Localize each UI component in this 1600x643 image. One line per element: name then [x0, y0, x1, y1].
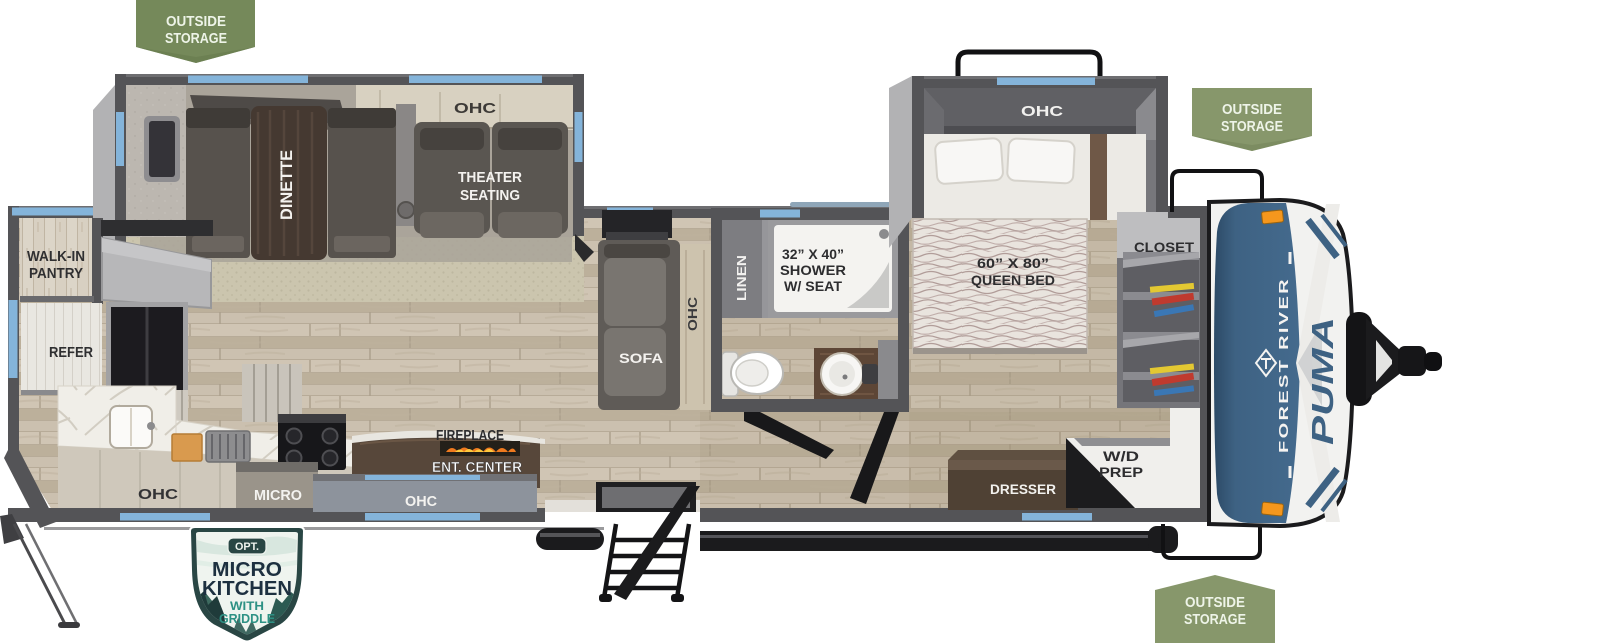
svg-text:MICRO: MICRO: [254, 488, 302, 504]
svg-text:FIREPLACE: FIREPLACE: [436, 428, 504, 444]
svg-text:ENT. CENTER: ENT. CENTER: [432, 460, 522, 476]
svg-text:OUTSIDE: OUTSIDE: [166, 14, 226, 30]
svg-text:PREP: PREP: [1099, 465, 1143, 480]
svg-text:STORAGE: STORAGE: [165, 31, 227, 47]
svg-text:CLOSET: CLOSET: [1134, 239, 1194, 255]
svg-text:OHC: OHC: [686, 297, 700, 331]
svg-text:WALK-IN: WALK-IN: [27, 249, 85, 265]
svg-text:OHC: OHC: [138, 487, 179, 503]
svg-text:STORAGE: STORAGE: [1221, 119, 1283, 135]
svg-text:SOFA: SOFA: [619, 351, 663, 366]
svg-text:32” X 40”: 32” X 40”: [782, 247, 844, 262]
svg-text:SEATING: SEATING: [460, 187, 520, 204]
svg-text:W/ SEAT: W/ SEAT: [784, 279, 843, 294]
svg-text:OUTSIDE: OUTSIDE: [1185, 595, 1245, 611]
svg-text:W/D: W/D: [1103, 449, 1139, 464]
svg-text:REFER: REFER: [49, 345, 93, 361]
svg-text:THEATER: THEATER: [458, 169, 522, 186]
svg-text:OHC: OHC: [454, 100, 496, 117]
svg-text:LINEN: LINEN: [735, 255, 749, 301]
svg-text:STORAGE: STORAGE: [1184, 612, 1246, 628]
svg-text:OPT.: OPT.: [235, 541, 259, 553]
svg-text:DINETTE: DINETTE: [277, 150, 296, 220]
svg-text:PANTRY: PANTRY: [29, 266, 83, 282]
svg-text:DRESSER: DRESSER: [990, 482, 1056, 497]
svg-text:FOREST RIVER: FOREST RIVER: [1276, 277, 1291, 453]
svg-text:PUMA: PUMA: [1305, 317, 1340, 445]
svg-text:KITCHEN: KITCHEN: [202, 578, 292, 600]
svg-text:60” X 80”: 60” X 80”: [977, 255, 1049, 271]
svg-text:QUEEN BED: QUEEN BED: [971, 272, 1055, 288]
svg-text:SHOWER: SHOWER: [780, 263, 846, 278]
svg-text:OHC: OHC: [1021, 103, 1063, 120]
svg-text:OHC: OHC: [405, 494, 438, 510]
svg-text:GRIDDLE: GRIDDLE: [219, 611, 275, 626]
svg-text:OUTSIDE: OUTSIDE: [1222, 102, 1282, 118]
